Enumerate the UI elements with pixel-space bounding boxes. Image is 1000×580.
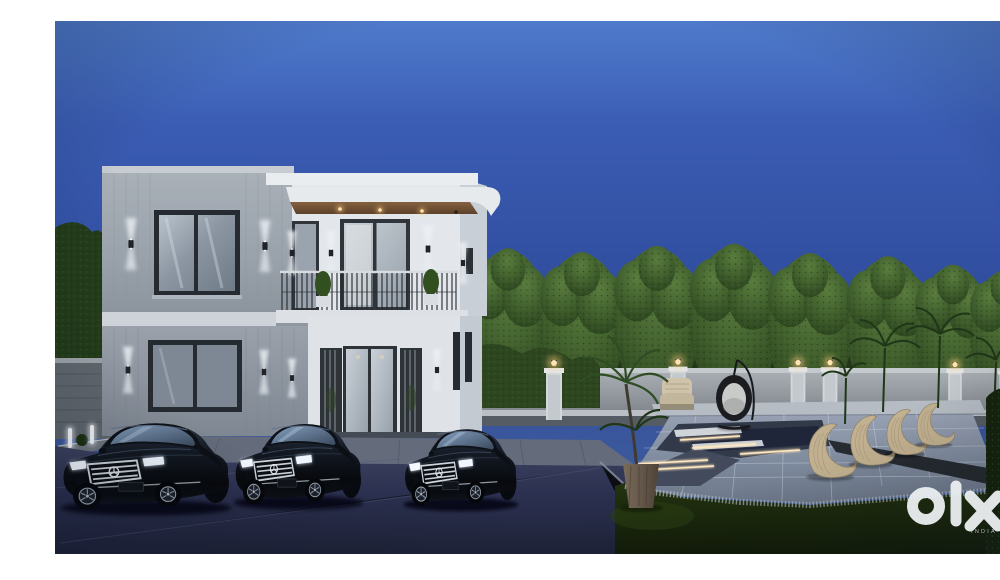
photo-title: Modern duplex villa exterior 3D render a… (40, 16, 41, 17)
olx-india-label: INDIA (971, 529, 997, 535)
villa-render-photo: Night-time architectural visualization o… (55, 21, 1000, 554)
listing-photo-frame: Modern duplex villa exterior 3D render a… (40, 16, 1000, 564)
vignette-overlay (55, 21, 1000, 554)
